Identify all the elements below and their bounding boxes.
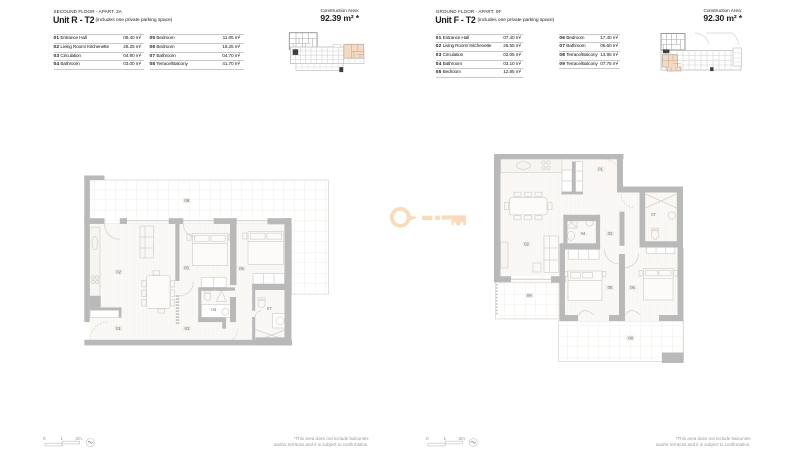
svg-text:07: 07 xyxy=(651,212,656,217)
svg-text:01: 01 xyxy=(598,167,603,172)
svg-text:02: 02 xyxy=(116,269,121,274)
svg-text:04: 04 xyxy=(581,231,586,236)
svg-text:05: 05 xyxy=(184,266,189,271)
svg-text:05: 05 xyxy=(608,285,613,290)
svg-text:06: 06 xyxy=(630,285,635,290)
svg-text:04: 04 xyxy=(211,307,216,312)
svg-text:03: 03 xyxy=(185,326,190,331)
svg-text:03: 03 xyxy=(608,231,613,236)
svg-text:08: 08 xyxy=(628,336,633,341)
svg-text:09: 09 xyxy=(527,293,532,298)
svg-text:01: 01 xyxy=(116,326,121,331)
svg-text:06: 06 xyxy=(239,266,244,271)
svg-text:08: 08 xyxy=(184,198,189,203)
svg-text:07: 07 xyxy=(267,306,272,311)
svg-text:02: 02 xyxy=(524,242,529,247)
